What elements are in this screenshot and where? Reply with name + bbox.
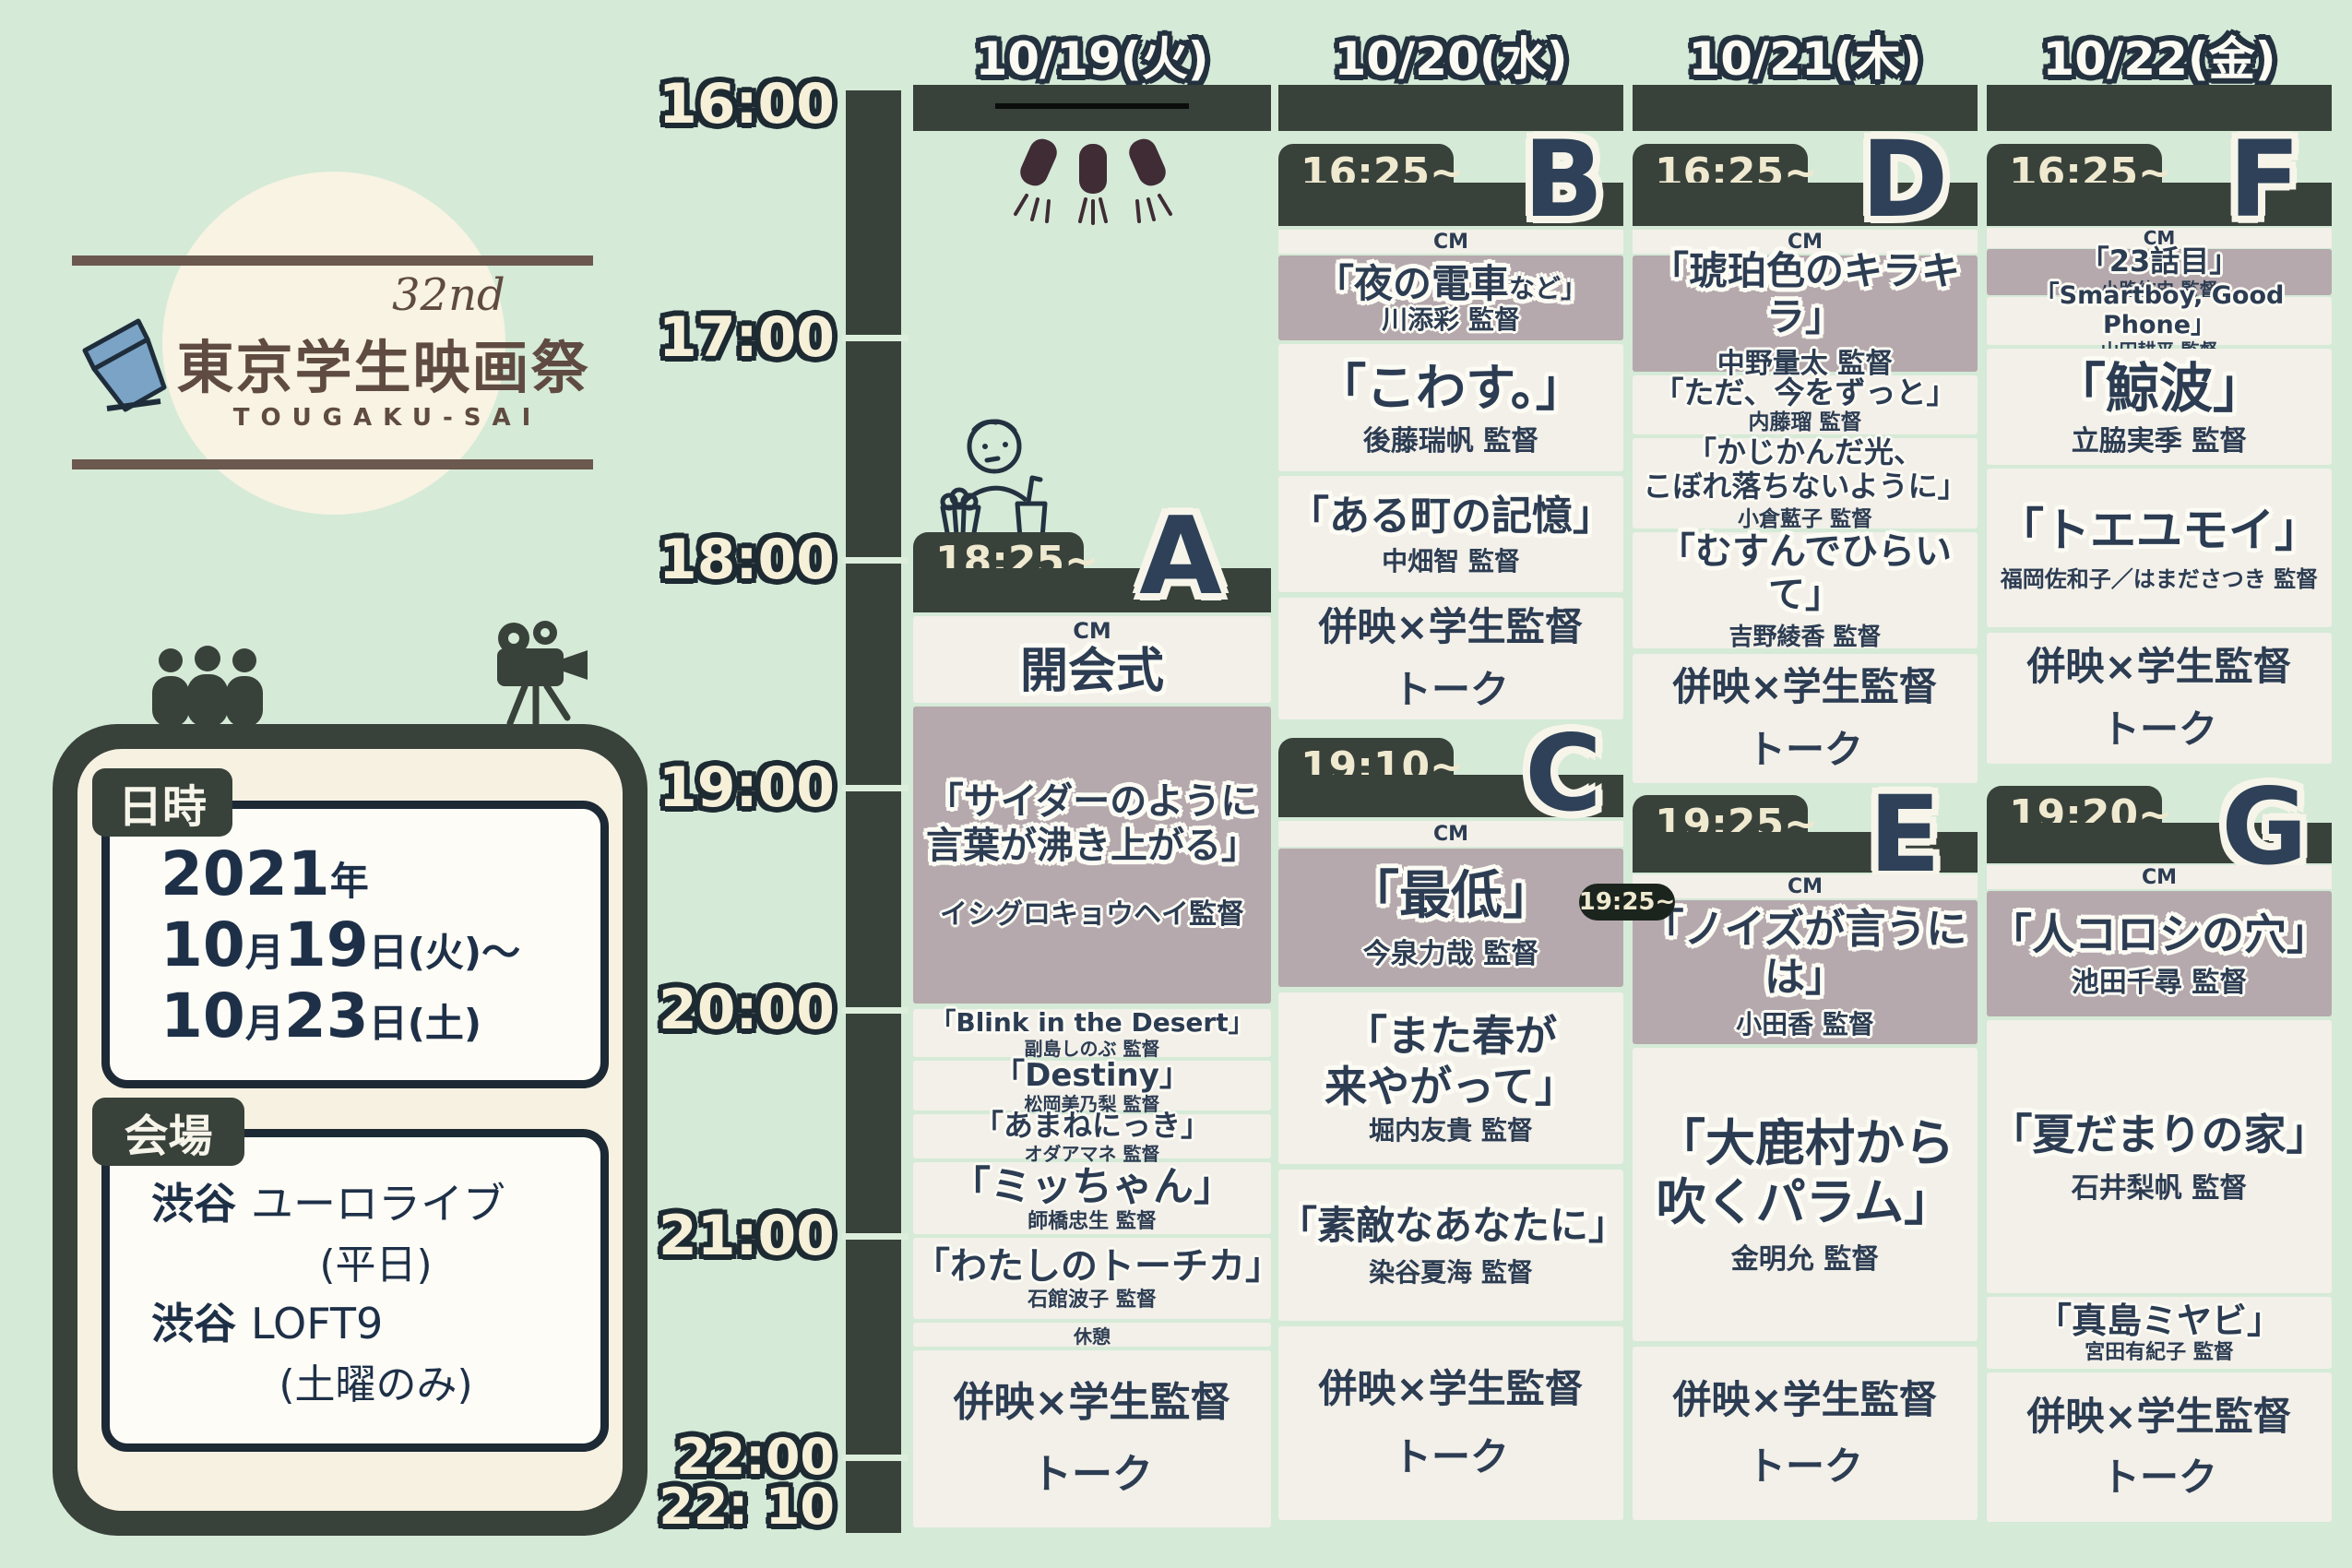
film-title-small: など」 xyxy=(1509,273,1586,303)
date-tag-label: 日時 xyxy=(118,770,207,835)
talk-block: 併映×学生監督 トーク xyxy=(1633,654,1978,783)
time-label-2100: 21:00 xyxy=(609,1204,835,1268)
film-director: 金明允 監督 xyxy=(1731,1244,1879,1275)
talk-line: トーク xyxy=(1031,1451,1153,1499)
talk-line: トーク xyxy=(1747,727,1863,773)
audience-icon xyxy=(150,646,266,727)
film-title: 「人コロシの穴」 xyxy=(1990,909,2329,959)
talk-line: トーク xyxy=(2101,707,2217,753)
feature-film-block: 「最低」 今泉力哉 監督 xyxy=(1278,849,1623,987)
date-day-start: 19 xyxy=(284,909,369,980)
early-start-time: 19:25~ xyxy=(1579,888,1676,916)
logo-title: 東京学生映画祭 xyxy=(169,321,598,404)
talk-line: 併映×学生監督 xyxy=(1672,1377,1937,1423)
venue-line-1: 渋谷 ユーロライブ xyxy=(151,1170,600,1231)
film-director: 吉野綾香 監督 xyxy=(1728,624,1881,651)
film-block: 「ある町の記憶」 中畑智 監督 xyxy=(1278,476,1623,592)
session-d-letter: D xyxy=(1845,127,1965,232)
cm-strip: CM xyxy=(1278,230,1623,254)
time-label-2210: 22: 10 xyxy=(609,1478,835,1536)
opening-ceremony-block: CM 開会式 xyxy=(913,616,1271,703)
talk-block: 併映×学生監督 トーク xyxy=(1987,1372,2332,1522)
film-title: 「Blink in the Desert」 xyxy=(930,1007,1253,1038)
feature-film-block: 「夜の電車など」 川添彩 監督 xyxy=(1278,255,1623,340)
film-block: 「鯨波」 立脇実季 監督 xyxy=(1987,349,2332,465)
film-title: 「夏だまりの家」 xyxy=(1990,1110,2328,1159)
spotlight-icon xyxy=(1001,131,1185,232)
tick-20 xyxy=(842,1007,909,1014)
date-month-start: 10 xyxy=(160,909,245,980)
date-month-unit: 月 xyxy=(245,930,284,975)
break-label: 休憩 xyxy=(1074,1322,1111,1348)
cm-label: CM xyxy=(2142,866,2177,889)
session-c-letter: C xyxy=(1503,721,1623,826)
date-line-1: 2021年 xyxy=(160,838,600,909)
date-day-end: 23 xyxy=(284,980,369,1051)
time-label-2000: 20:00 xyxy=(609,978,835,1042)
logo-rule-top xyxy=(72,255,593,266)
talk-line: 併映×学生監督 xyxy=(2026,1394,2291,1440)
film-director: 今泉力哉 監督 xyxy=(1363,939,1538,969)
film-director: 立脇実季 監督 xyxy=(2072,426,2247,457)
film-block: 「素敵なあなたに」 染谷夏海 監督 xyxy=(1278,1170,1623,1321)
day-header-thu: 10/21(木) xyxy=(1633,22,1978,89)
film-title: 「琥珀色のキラキラ」 xyxy=(1633,248,1978,339)
film-title: 「かじかんだ光、 xyxy=(1687,435,1923,470)
film-title: 「ミッちゃん」 xyxy=(950,1163,1234,1211)
cm-label: CM xyxy=(1788,875,1823,898)
film-block: 「Blink in the Desert」 副島しのぶ 監督 xyxy=(913,1009,1271,1057)
time-label-1800: 18:00 xyxy=(609,528,835,592)
film-title: 「あまねにっき」 xyxy=(974,1109,1210,1144)
film-title: 「むすんでひらいて」 xyxy=(1633,530,1978,617)
talk-block: 併映×学生監督 トーク xyxy=(913,1350,1271,1527)
film-director: 石館波子 監督 xyxy=(1028,1289,1157,1312)
film-title: 「鯨波」 xyxy=(2052,357,2266,420)
film-block: 「Destiny」 松岡美乃梨 監督 xyxy=(913,1061,1271,1111)
tick-22 xyxy=(842,1455,909,1461)
film-director: 小倉藍子 監督 xyxy=(1738,508,1872,531)
talk-line: 併映×学生監督 xyxy=(1318,1366,1583,1412)
film-title: 「23話目」 xyxy=(2080,244,2239,279)
logo-subtitle: TOUGAKU-SAI xyxy=(208,404,567,432)
film-title: 来やがって」 xyxy=(1324,1062,1577,1111)
film-camera-icon xyxy=(482,618,598,727)
date-day-end-suffix: 日(土) xyxy=(369,1001,481,1046)
venue-line-4: (土曜のみ) xyxy=(279,1351,472,1410)
film-title: 言葉が沸き上がる」 xyxy=(926,825,1258,868)
date-line-2: 10月19日(火)〜 xyxy=(160,909,600,980)
film-block: 「かじかんだ光、 こぼれ落ちないように」 小倉藍子 監督 xyxy=(1633,438,1978,529)
film-block: 「Smartboy, Good Phone」 山田耕平 監督 xyxy=(1987,297,2332,345)
date-day-suffix: 日(火)〜 xyxy=(369,930,520,975)
film-title: 「大鹿村から xyxy=(1656,1114,1954,1173)
film-block: 「むすんでひらいて」 吉野綾香 監督 xyxy=(1633,532,1978,648)
talk-line: 併映×学生監督 xyxy=(954,1379,1231,1427)
film-title: 「ある町の記憶」 xyxy=(1289,493,1613,540)
film-block: 「また春が 来やがって」 堀内友貴 監督 xyxy=(1278,992,1623,1164)
film-director: 川添彩 監督 xyxy=(1382,306,1520,335)
film-title: 「素敵なあなたに」 xyxy=(1278,1203,1623,1249)
cm-label: CM xyxy=(1433,823,1468,846)
film-director: 石井梨帆 監督 xyxy=(2072,1173,2247,1204)
film-director: 中畑智 監督 xyxy=(1382,548,1520,576)
film-block: 「真島ミヤビ」 宮田有紀子 監督 xyxy=(1987,1297,2332,1369)
cm-label: CM xyxy=(1073,618,1111,644)
film-director: イシグロキョウヘイ監督 xyxy=(940,899,1244,930)
cm-label: CM xyxy=(1433,231,1468,254)
film-director: 池田千尋 監督 xyxy=(2072,968,2247,998)
film-title: 「夜の電車など」 xyxy=(1315,261,1586,307)
talk-line: トーク xyxy=(2101,1455,2217,1501)
film-title: 「ただ、今をずっと」 xyxy=(1653,375,1956,411)
talk-line: 併映×学生監督 xyxy=(1672,664,1937,710)
tick-21 xyxy=(842,1233,909,1240)
break-block: 休憩 xyxy=(913,1323,1271,1347)
talk-block: 併映×学生監督 トーク xyxy=(1278,1326,1623,1520)
film-title: 「Smartboy, Good Phone」 xyxy=(1987,281,2332,340)
film-director: 師橋忠生 監督 xyxy=(1028,1211,1157,1233)
film-director: オダアマネ 監督 xyxy=(1025,1144,1160,1164)
cm-strip: CM xyxy=(1987,865,2332,889)
talk-block: 併映×学生監督 トーク xyxy=(1633,1347,1978,1520)
talk-line: 併映×学生監督 xyxy=(2026,644,2291,690)
date-month-end: 10 xyxy=(160,980,245,1051)
film-block: 「わたしのトーチカ」 石館波子 監督 xyxy=(913,1238,1271,1319)
date-box: 2021年 10月19日(火)〜 10月23日(土) xyxy=(101,801,609,1088)
venue-city-2: 渋谷 xyxy=(151,1299,236,1348)
talk-block: 併映×学生監督 トーク xyxy=(1987,633,2332,764)
venue-line-3: 渋谷 LOFT9 xyxy=(151,1290,600,1351)
film-block: 「夏だまりの家」 石井梨帆 監督 xyxy=(1987,1020,2332,1293)
venue-line-2: (平日) xyxy=(319,1231,432,1290)
time-label-1600: 16:00 xyxy=(609,72,835,137)
film-title-main: 「夜の電車 xyxy=(1315,261,1509,306)
feature-film-block: 「琥珀色のキラキラ」 中野量太 監督 xyxy=(1633,255,1978,372)
time-label-1900: 19:00 xyxy=(609,755,835,820)
film-title: 「サイダーのように xyxy=(927,780,1257,824)
feature-film-block: 「サイダーのように 言葉が沸き上がる」 イシグロキョウヘイ監督 xyxy=(913,707,1271,1004)
cm-strip: CM xyxy=(1633,874,1978,898)
tick-18 xyxy=(842,557,909,564)
film-title: 「わたしのトーチカ」 xyxy=(913,1245,1271,1289)
date-month-end-unit: 月 xyxy=(245,1001,284,1046)
ceremony-title: 開会式 xyxy=(1020,644,1164,700)
film-title: 「Destiny」 xyxy=(993,1057,1191,1094)
festival-timetable-poster: 32nd 東京学生映画祭 TOUGAKU-SAI 日時 xyxy=(0,0,2352,1568)
early-start-pill: 19:25~ xyxy=(1579,884,1675,921)
venue-box: 渋谷 ユーロライブ (平日) 渋谷 LOFT9 (土曜のみ) xyxy=(101,1129,609,1452)
tick-17 xyxy=(842,335,909,341)
film-director: 副島しのぶ 監督 xyxy=(1025,1039,1160,1059)
session-b-letter: B xyxy=(1503,127,1623,232)
cm-strip: CM xyxy=(1278,821,1623,847)
session-e-letter: E xyxy=(1845,782,1965,887)
stage-line xyxy=(995,103,1189,109)
film-title: 「また春が xyxy=(1345,1011,1557,1061)
film-block: 「ただ、今をずっと」 内藤瑠 監督 xyxy=(1633,375,1978,434)
talk-line: トーク xyxy=(1393,667,1509,713)
logo-edition: 32nd xyxy=(392,269,505,321)
venue-name-1: ユーロライブ xyxy=(251,1179,505,1229)
date-year: 2021 xyxy=(160,838,330,909)
moviegoer-icon xyxy=(930,410,1059,546)
film-title: 「最低」 xyxy=(1348,866,1554,927)
film-block: 「あまねにっき」 オダアマネ 監督 xyxy=(913,1114,1271,1158)
film-title: 「真島ミヤビ」 xyxy=(2037,1301,2282,1342)
venue-city-1: 渋谷 xyxy=(151,1179,236,1229)
film-director: 堀内友貴 監督 xyxy=(1369,1117,1533,1146)
session-g-letter: G xyxy=(2204,775,2324,880)
film-director: 小田香 監督 xyxy=(1736,1011,1874,1039)
film-director: 宮田有紀子 監督 xyxy=(2085,1342,2234,1364)
film-title: 「ノイズが言うには」 xyxy=(1633,906,1978,1002)
session-a-letter: A xyxy=(1121,504,1241,611)
film-title: 「トエユモイ」 xyxy=(1998,504,2321,558)
talk-line: トーク xyxy=(1393,1434,1509,1480)
day-header-fri: 10/22(金) xyxy=(1987,22,2332,89)
film-block: 「大鹿村から 吹くパラム」 金明允 監督 xyxy=(1633,1048,1978,1341)
time-label-1700: 17:00 xyxy=(609,305,835,370)
film-title: 「こわす。」 xyxy=(1316,359,1586,418)
tick-19 xyxy=(842,785,909,791)
feature-film-block: 「ノイズが言うには」 小田香 監督 xyxy=(1633,900,1978,1044)
day-header-wed: 10/20(水) xyxy=(1278,22,1623,89)
day-header-tue: 10/19(火) xyxy=(913,22,1271,89)
film-director: 福岡佐和子／はまださつき 監督 xyxy=(2001,567,2318,591)
film-title: こぼれ落ちないように」 xyxy=(1643,469,1966,505)
film-title: 吹くパラム」 xyxy=(1657,1173,1954,1232)
film-director: 内藤瑠 監督 xyxy=(1748,411,1861,434)
date-year-unit: 年 xyxy=(330,859,369,904)
talk-block: 併映×学生監督 トーク xyxy=(1278,598,1623,719)
talk-line: 併映×学生監督 xyxy=(1318,604,1583,650)
date-line-3: 10月23日(土) xyxy=(160,980,600,1051)
timeline-bar xyxy=(846,90,901,1533)
film-block: 「こわす。」 後藤瑞帆 監督 xyxy=(1278,344,1623,471)
feature-film-block: 「人コロシの穴」 池田千尋 監督 xyxy=(1987,891,2332,1016)
film-block: 「ミッちゃん」 師橋忠生 監督 xyxy=(913,1162,1271,1234)
talk-line: トーク xyxy=(1747,1443,1863,1490)
film-director: 染谷夏海 監督 xyxy=(1369,1259,1533,1288)
venue-tag-label: 会場 xyxy=(124,1099,212,1164)
venue-name-2: LOFT9 xyxy=(251,1299,383,1348)
clapperboard-icon xyxy=(79,315,181,417)
venue-tag: 会場 xyxy=(92,1098,244,1166)
film-director: 後藤瑞帆 監督 xyxy=(1363,426,1538,457)
logo-rule-bottom xyxy=(72,459,593,469)
session-f-letter: F xyxy=(2204,127,2324,232)
film-block: 「トエユモイ」 福岡佐和子／はまださつき 監督 xyxy=(1987,469,2332,627)
date-tag: 日時 xyxy=(92,768,232,837)
